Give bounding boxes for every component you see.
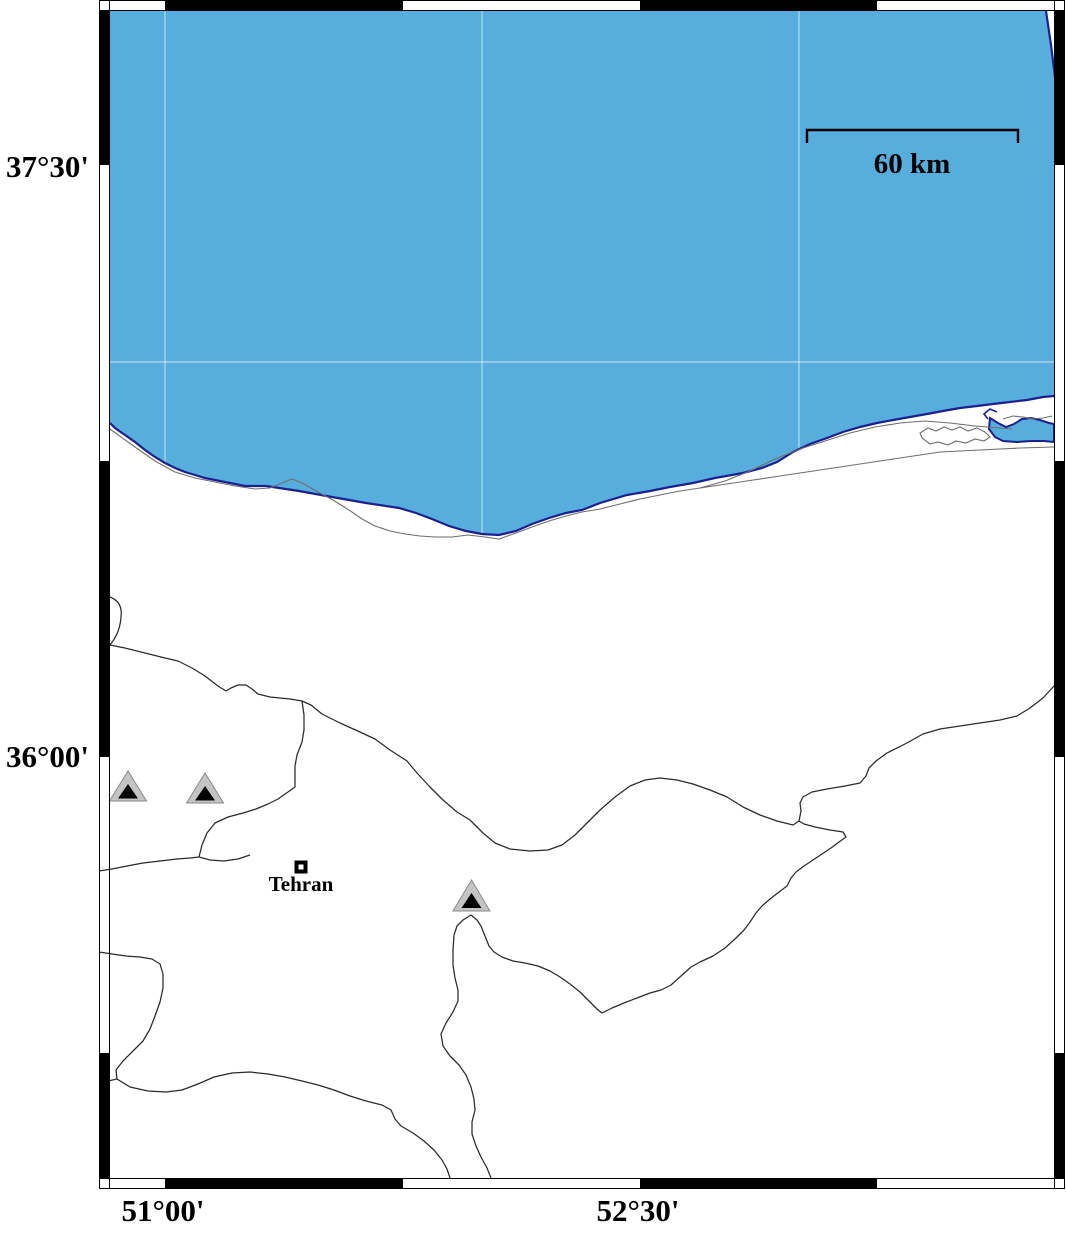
lat-label-36-00: 36°00' (6, 739, 89, 774)
scale-bar-label: 60 km (874, 148, 951, 180)
map-svg: Tehran 60 km 37°30' 36°00' 51°00' 52°3 (0, 0, 1066, 1229)
tehran-label: Tehran (269, 872, 334, 896)
frame-corner-tl (100, 1, 110, 11)
lon-label-52-30: 52°30' (596, 1193, 679, 1228)
frame-corner-br (1055, 1179, 1065, 1189)
lon-label-51-00: 51°00' (121, 1193, 204, 1228)
lat-label-37-30: 37°30' (6, 149, 89, 184)
map-canvas: Tehran 60 km 37°30' 36°00' 51°00' 52°3 (0, 0, 1066, 1234)
frame-corner-tr (1055, 1, 1065, 11)
tehran-marker (297, 863, 306, 872)
frame-corner-bl (100, 1179, 110, 1189)
